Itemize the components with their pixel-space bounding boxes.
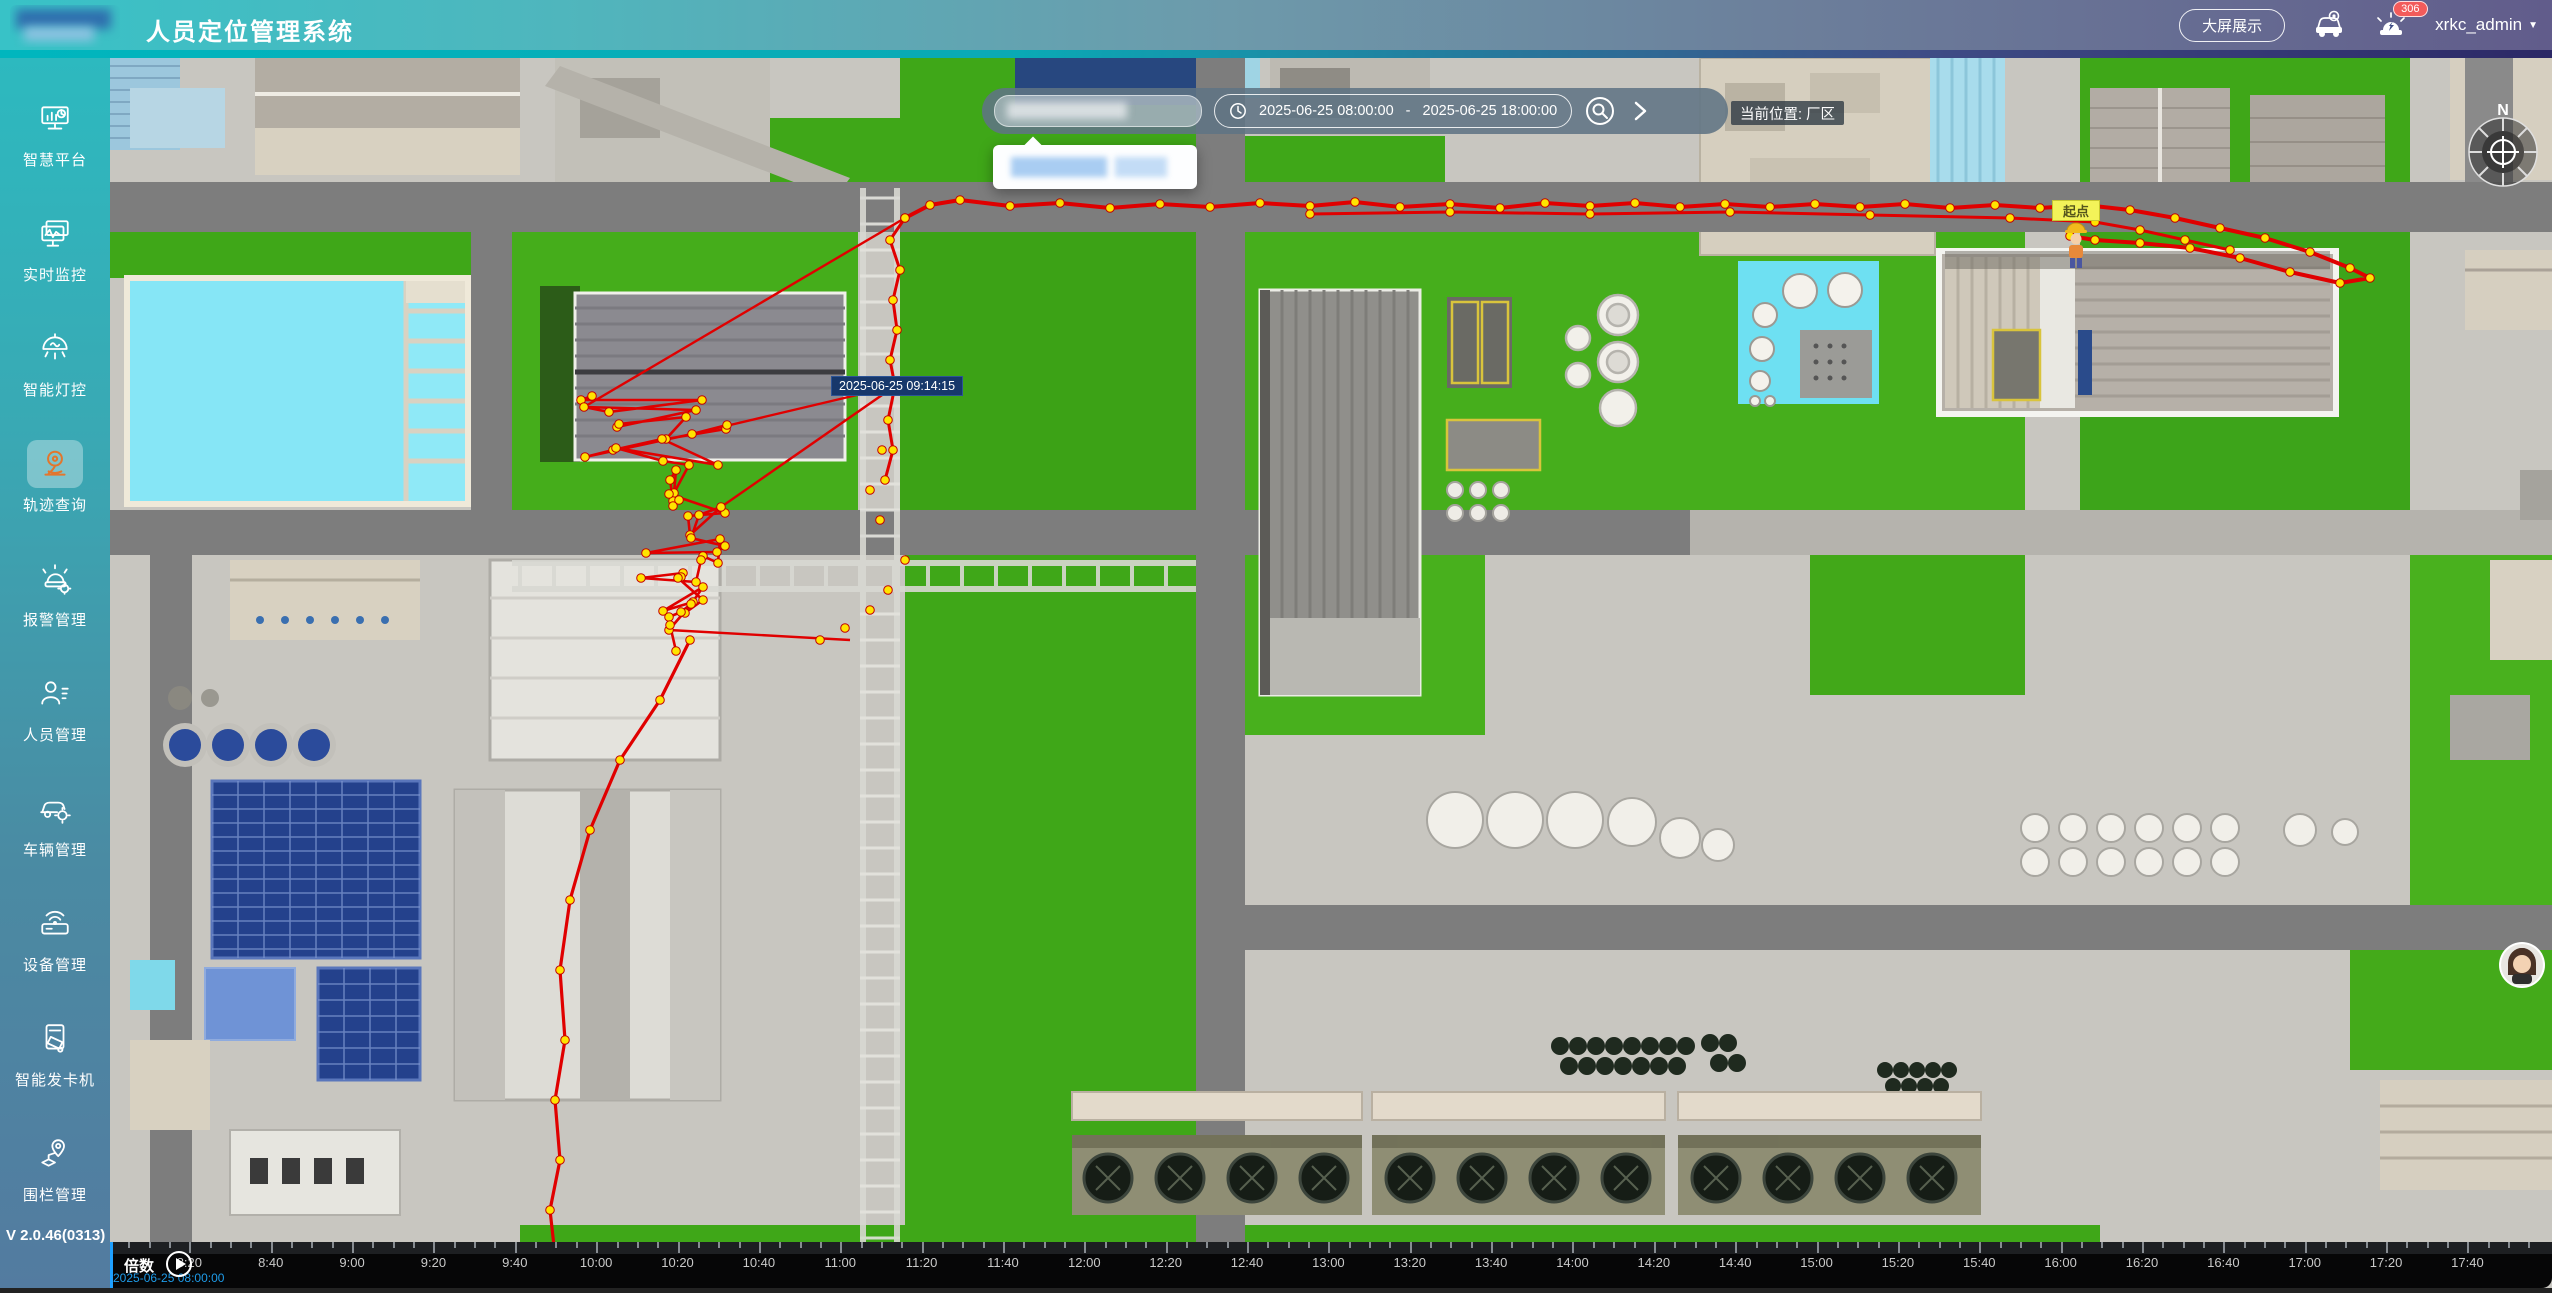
timeline-tick — [1959, 1242, 1961, 1248]
timeline-tick — [1023, 1242, 1025, 1248]
timeline-tick — [2467, 1242, 2469, 1253]
timeline-tick — [1532, 1242, 1534, 1248]
vehicle-manage-icon — [27, 785, 83, 833]
timeline-tick — [169, 1242, 171, 1248]
timeline-time-label: 10:40 — [743, 1255, 776, 1270]
realtime-monitor-icon — [27, 210, 83, 258]
timeline-tick — [2223, 1242, 2225, 1253]
timeline-tick — [474, 1242, 476, 1248]
timeline-tick — [861, 1242, 863, 1248]
timeline-time-label: 14:40 — [1719, 1255, 1752, 1270]
smart-platform-icon — [27, 95, 83, 143]
timeline-tick — [413, 1242, 415, 1248]
timeline-tick — [1206, 1242, 1208, 1248]
timeline-tick — [718, 1242, 720, 1248]
device-manage-icon — [27, 900, 83, 948]
timeline-tick — [1511, 1242, 1513, 1248]
timeline-time-label: 9:00 — [339, 1255, 364, 1270]
timeline-tick — [1450, 1242, 1452, 1248]
version-label: V 2.0.46(0313) — [6, 1227, 105, 1244]
timeline-time-label: 16:00 — [2044, 1255, 2077, 1270]
timeline-tick — [1613, 1242, 1615, 1248]
timeline-tick — [779, 1242, 781, 1248]
timeline-tick — [393, 1242, 395, 1248]
timeline-time-label: 15:20 — [1882, 1255, 1915, 1270]
timeline-time-label: 14:00 — [1556, 1255, 1589, 1270]
timeline-tick — [352, 1242, 354, 1253]
timeline-time-label: 13:20 — [1393, 1255, 1426, 1270]
sidebar-item-1[interactable]: 智慧平台 — [0, 95, 110, 170]
redacted-person-tag — [1115, 157, 1167, 177]
sidebar-item-label: 智能灯控 — [0, 379, 110, 400]
timeline-tick — [1471, 1242, 1473, 1248]
big-screen-button[interactable]: 大屏展示 — [2179, 9, 2285, 42]
company-logo — [10, 5, 120, 47]
timeline-tick — [494, 1242, 496, 1248]
username: xrkc_admin — [2435, 15, 2522, 35]
timeline-tick — [2061, 1242, 2063, 1253]
timeline-tick — [983, 1242, 985, 1248]
timeline-tick — [840, 1242, 842, 1253]
timeline-tick — [271, 1242, 273, 1253]
timeline-time-label: 9:40 — [502, 1255, 527, 1270]
timeline-tick — [617, 1242, 619, 1248]
timeline-tick — [1369, 1242, 1371, 1248]
timeline-tick — [2528, 1242, 2530, 1248]
timeline-tick — [2203, 1242, 2205, 1248]
timeline-tick — [1715, 1242, 1717, 1248]
timeline-time-label: 8:40 — [258, 1255, 283, 1270]
timeline-time-label: 11:40 — [987, 1255, 1019, 1270]
plant-map[interactable]: N — [110, 58, 2552, 1288]
timeline-tick — [1064, 1242, 1066, 1248]
timeline-tick — [1695, 1242, 1697, 1248]
timeline-tick — [1817, 1242, 1819, 1253]
timeline-tick — [2447, 1242, 2449, 1248]
timeline-time-label: 17:40 — [2451, 1255, 2484, 1270]
timeline-tick — [555, 1242, 557, 1248]
clock-icon — [1229, 102, 1247, 120]
timeline-tick — [535, 1242, 537, 1248]
timeline-tick — [2366, 1242, 2368, 1248]
timeline-tick — [2000, 1242, 2002, 1248]
playback-timeline[interactable]: 8:208:409:009:209:4010:0010:2010:4011:00… — [110, 1242, 2552, 1288]
timeline-tick — [1430, 1242, 1432, 1248]
date-range-picker[interactable]: 2025-06-25 08:00:00 - 2025-06-25 18:00:0… — [1214, 94, 1572, 128]
timeline-tick — [128, 1242, 130, 1248]
timeline-tick — [1328, 1242, 1330, 1253]
timeline-time-label: 17:20 — [2370, 1255, 2403, 1270]
header-accent-strip — [0, 50, 2552, 58]
search-icon — [1584, 95, 1616, 127]
timeline-tick — [1796, 1242, 1798, 1248]
sidebar-item-label: 人员管理 — [0, 724, 110, 745]
timeline-tick — [1166, 1242, 1168, 1253]
timeline-tick — [2305, 1242, 2307, 1253]
avatar-marker[interactable] — [2499, 942, 2545, 988]
track-query-icon — [27, 440, 83, 488]
track-query-toolbar: 2025-06-25 08:00:00 - 2025-06-25 18:00:0… — [982, 88, 1728, 134]
timeline-time-label: 17:00 — [2288, 1255, 2321, 1270]
timeline-tick — [1267, 1242, 1269, 1248]
timeline-tick — [922, 1242, 924, 1253]
timeline-tick — [1552, 1242, 1554, 1248]
timeline-tick — [2122, 1242, 2124, 1248]
timeline-tick — [2244, 1242, 2246, 1248]
redacted-person-tag — [1011, 157, 1107, 177]
timeline-tick — [311, 1242, 313, 1248]
timeline-tick — [2427, 1242, 2429, 1248]
sidebar-item-label: 实时监控 — [0, 264, 110, 285]
timeline-tick — [820, 1242, 822, 1248]
sidebar-item-label: 智慧平台 — [0, 149, 110, 170]
timeline-tick — [596, 1242, 598, 1253]
timeline-tick — [678, 1242, 680, 1253]
timeline-tick — [1634, 1242, 1636, 1248]
timeline-time-label: 10:20 — [661, 1255, 694, 1270]
cyan-tank-pad — [1738, 261, 1879, 406]
sidebar-item-label: 车辆管理 — [0, 839, 110, 860]
timeline-tick — [2488, 1242, 2490, 1248]
timeline-tick — [1003, 1242, 1005, 1253]
timeline-time-label: 13:00 — [1312, 1255, 1345, 1270]
sidebar-item-label: 围栏管理 — [0, 1184, 110, 1205]
date-end: 2025-06-25 18:00:00 — [1423, 103, 1558, 119]
timeline-tick — [942, 1242, 944, 1248]
timeline-tick — [230, 1242, 232, 1248]
timeline-tick — [2345, 1242, 2347, 1248]
timeline-time-label: 16:40 — [2207, 1255, 2240, 1270]
alarm-icon[interactable]: 306 — [2373, 7, 2409, 43]
timeline-tick — [1572, 1242, 1574, 1253]
timeline-time-label: 12:00 — [1068, 1255, 1101, 1270]
timeline-time-label: 9:20 — [421, 1255, 446, 1270]
timeline-tick — [2183, 1242, 2185, 1248]
sidebar-item-8[interactable]: 设备管理 — [0, 900, 110, 975]
cooling-units — [1072, 1092, 1981, 1215]
start-point-label: 起点 — [2052, 200, 2100, 221]
timeline-tick — [962, 1242, 964, 1248]
sidebar-item-4[interactable]: 轨迹查询 — [0, 440, 110, 515]
timeline-tick — [1186, 1242, 1188, 1248]
sidebar-item-2[interactable]: 实时监控 — [0, 210, 110, 285]
timeline-tick — [881, 1242, 883, 1248]
water-pool — [124, 275, 471, 507]
timeline-time-label: 12:40 — [1231, 1255, 1264, 1270]
sidebar-item-label: 智能发卡机 — [0, 1069, 110, 1090]
timeline-tick — [332, 1242, 334, 1248]
timeline-tick — [1654, 1242, 1656, 1253]
playback-speed-label: 倍数 — [124, 1255, 154, 1276]
timeline-ticks — [110, 1242, 2552, 1254]
timeline-time-label: 15:00 — [1800, 1255, 1833, 1270]
play-button[interactable] — [166, 1251, 192, 1277]
sidebar-item-9[interactable]: 智能发卡机 — [0, 1015, 110, 1090]
person-search-input[interactable] — [994, 95, 1202, 127]
timeline-tick — [1756, 1242, 1758, 1248]
sidebar-item-7[interactable]: 车辆管理 — [0, 785, 110, 860]
timeline-time-label: 16:20 — [2126, 1255, 2159, 1270]
search-button[interactable] — [1584, 95, 1616, 127]
timeline-tick — [657, 1242, 659, 1248]
timeline-tick — [1674, 1242, 1676, 1248]
user-menu[interactable]: xrkc_admin ▼ — [2435, 15, 2538, 35]
timeline-tick — [250, 1242, 252, 1248]
timeline-tick — [800, 1242, 802, 1248]
center-building — [1260, 290, 1420, 695]
chevron-right-icon — [1628, 99, 1652, 123]
timeline-tick — [698, 1242, 700, 1248]
timeline-tick — [515, 1242, 517, 1253]
alarm-count-badge: 306 — [2393, 1, 2427, 17]
timeline-tick — [1288, 1242, 1290, 1248]
timeline-tick — [1410, 1242, 1412, 1253]
timeline-tick — [454, 1242, 456, 1248]
timeline-time-label: 15:40 — [1963, 1255, 1996, 1270]
timeline-tick — [2020, 1242, 2022, 1248]
timeline-tick — [576, 1242, 578, 1248]
timeline-tick — [189, 1242, 191, 1253]
timeline-tick — [149, 1242, 151, 1248]
timeline-tick — [2142, 1242, 2144, 1253]
timeline-tick — [1145, 1242, 1147, 1248]
timeline-tick — [1349, 1242, 1351, 1248]
track-time-tooltip: 2025-06-25 09:14:15 — [831, 376, 963, 396]
timeline-tick — [1979, 1242, 1981, 1253]
vehicle-icon[interactable] — [2311, 7, 2347, 43]
timeline-tick — [1837, 1242, 1839, 1248]
timeline-tick — [1776, 1242, 1778, 1248]
timeline-tick — [372, 1242, 374, 1248]
timeline-tick — [2406, 1242, 2408, 1248]
timeline-tick — [2081, 1242, 2083, 1248]
card-machine-icon — [27, 1015, 83, 1063]
timeline-tick — [1918, 1242, 1920, 1248]
date-separator: - — [1406, 103, 1411, 119]
timeline-tick — [2101, 1242, 2103, 1248]
timeline-tick — [2264, 1242, 2266, 1248]
sidebar-item-6[interactable]: 人员管理 — [0, 670, 110, 745]
timeline-tick — [759, 1242, 761, 1253]
timeline-time-label: 13:40 — [1475, 1255, 1508, 1270]
timeline-tick — [1735, 1242, 1737, 1253]
timeline-tick — [1125, 1242, 1127, 1248]
timeline-tick — [1105, 1242, 1107, 1248]
app-header: 人员定位管理系统 大屏展示 306 xrkc_admin ▼ — [0, 0, 2552, 50]
timeline-tick — [291, 1242, 293, 1248]
timeline-tick — [2508, 1242, 2510, 1248]
smart-light-icon — [27, 325, 83, 373]
timeline-tick — [1593, 1242, 1595, 1248]
timeline-time-label: 11:20 — [906, 1255, 938, 1270]
sidebar-item-5[interactable]: 报警管理 — [0, 555, 110, 630]
chevron-down-icon: ▼ — [2528, 20, 2538, 31]
timeline-tick — [1084, 1242, 1086, 1253]
timeline-tick — [1857, 1242, 1859, 1248]
sidebar-item-3[interactable]: 智能灯控 — [0, 325, 110, 400]
play-track-button[interactable] — [1628, 99, 1652, 123]
timeline-tick — [901, 1242, 903, 1248]
timeline-time-label: 11:00 — [824, 1255, 856, 1270]
timeline-tick — [210, 1242, 212, 1248]
timeline-tick — [433, 1242, 435, 1253]
big-right-building — [1939, 251, 2336, 414]
search-suggestion-popover[interactable] — [993, 145, 1197, 189]
timeline-tick — [1247, 1242, 1249, 1253]
fence-manage-icon — [27, 1130, 83, 1178]
timeline-tick — [1898, 1242, 1900, 1253]
timeline-tick — [2284, 1242, 2286, 1248]
timeline-tick — [739, 1242, 741, 1248]
current-location-label: 当前位置: 厂区 — [1731, 101, 1844, 125]
timeline-tick — [637, 1242, 639, 1248]
person-manage-icon — [27, 670, 83, 718]
timeline-tick — [1878, 1242, 1880, 1248]
timeline-tick — [1227, 1242, 1229, 1248]
timeline-tick — [2325, 1242, 2327, 1248]
timeline-tick — [2162, 1242, 2164, 1248]
sidebar-item-label: 轨迹查询 — [0, 494, 110, 515]
timeline-tick — [1939, 1242, 1941, 1248]
timeline-tick — [1389, 1242, 1391, 1248]
sidebar-item-label: 报警管理 — [0, 609, 110, 630]
timeline-tick — [2040, 1242, 2042, 1248]
timeline-tick — [1044, 1242, 1046, 1248]
compass-n-label: N — [2497, 102, 2509, 119]
date-start: 2025-06-25 08:00:00 — [1259, 103, 1394, 119]
timeline-tick — [1308, 1242, 1310, 1248]
alarm-manage-icon — [27, 555, 83, 603]
app-title: 人员定位管理系统 — [146, 12, 354, 47]
sidebar-item-10[interactable]: 围栏管理 — [0, 1130, 110, 1205]
sidebar-item-label: 设备管理 — [0, 954, 110, 975]
timeline-tick — [1491, 1242, 1493, 1253]
sidebar-nav: 智慧平台实时监控智能灯控轨迹查询报警管理人员管理车辆管理设备管理智能发卡机围栏管… — [0, 58, 110, 1288]
timeline-time-label: 12:20 — [1149, 1255, 1182, 1270]
timeline-time-label: 14:20 — [1638, 1255, 1671, 1270]
timeline-time-label: 10:00 — [580, 1255, 613, 1270]
timeline-tick — [2386, 1242, 2388, 1253]
